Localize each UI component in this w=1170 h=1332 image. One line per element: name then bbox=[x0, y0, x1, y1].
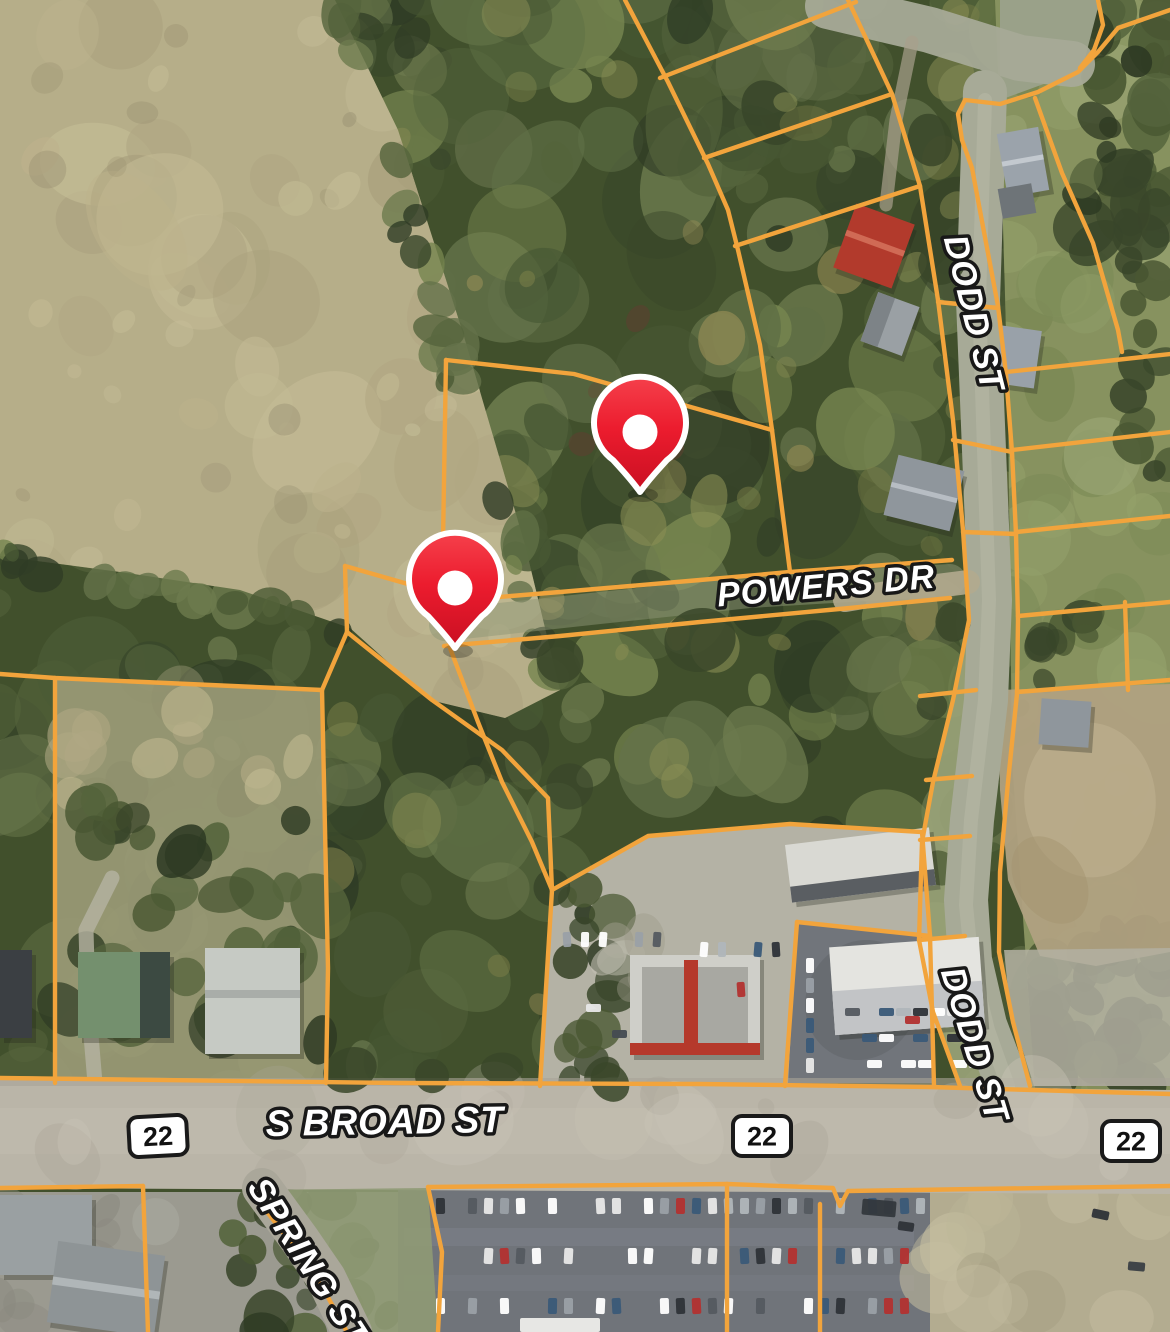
route-shield-number: 22 bbox=[747, 1122, 777, 1152]
building bbox=[630, 955, 764, 1060]
aerial-map: DODD STPOWERS DRDODD STS BROAD STSPRING … bbox=[0, 0, 1170, 1332]
building bbox=[0, 950, 36, 1043]
route-shield: 22 bbox=[128, 1115, 188, 1158]
route-shield-number: 22 bbox=[1116, 1127, 1146, 1157]
parcel-line bbox=[345, 566, 347, 632]
map-canvas[interactable]: DODD STPOWERS DRDODD STS BROAD STSPRING … bbox=[0, 0, 1170, 1332]
parcel-line bbox=[1125, 602, 1128, 690]
pin-center-dot bbox=[438, 571, 473, 606]
building bbox=[205, 948, 304, 1059]
parcel-line bbox=[963, 532, 1016, 534]
building bbox=[78, 952, 174, 1043]
building bbox=[1038, 698, 1095, 753]
route-shield-number: 22 bbox=[142, 1121, 174, 1153]
parcel-line bbox=[0, 1186, 143, 1188]
pin-center-dot bbox=[623, 415, 658, 450]
route-shield: 22 bbox=[733, 1116, 791, 1156]
road-label: S BROAD ST bbox=[265, 1099, 506, 1144]
route-shield: 22 bbox=[1102, 1121, 1160, 1161]
building bbox=[46, 1241, 169, 1332]
